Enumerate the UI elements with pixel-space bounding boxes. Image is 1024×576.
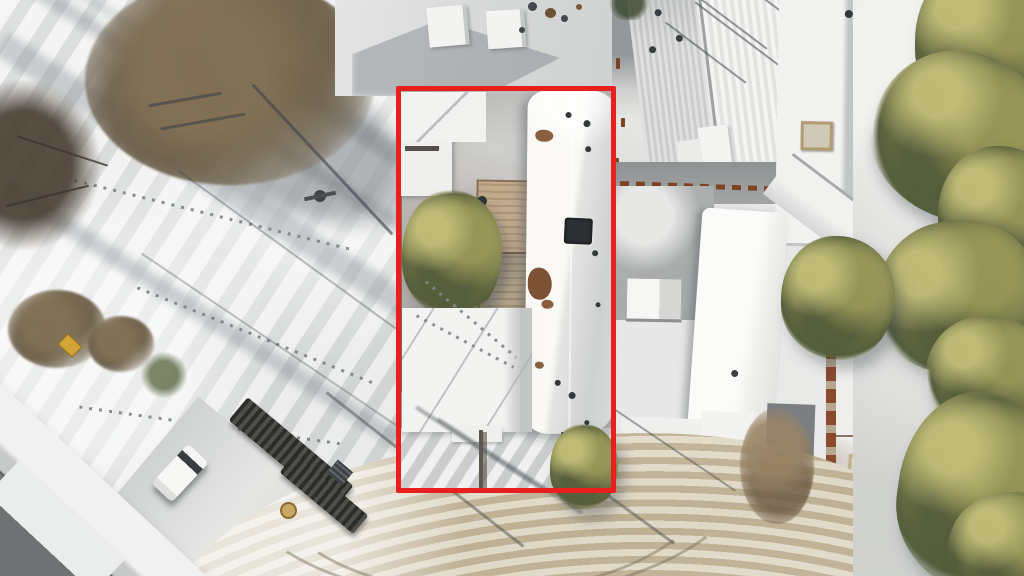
- yard-debris: [561, 15, 568, 22]
- aerial-photo-canvas: [0, 0, 1024, 576]
- roof-vent: [845, 10, 853, 18]
- small-shed: [426, 4, 469, 47]
- yard-debris: [519, 27, 525, 33]
- skylight: [800, 121, 833, 151]
- barrel: [280, 502, 297, 519]
- roof-vent: [731, 370, 738, 377]
- conifer-tip: [606, 0, 652, 20]
- spruce-tree: [781, 236, 895, 360]
- white-shed: [626, 278, 683, 323]
- bare-shrub: [740, 408, 814, 524]
- yard-debris: [545, 8, 556, 18]
- fence-post: [616, 58, 620, 69]
- property-boundary-highlight: [396, 86, 616, 493]
- bare-tree: [0, 80, 100, 250]
- yard-debris: [576, 4, 582, 10]
- fence-post: [621, 118, 625, 127]
- yard-debris: [528, 2, 537, 11]
- shrub: [138, 352, 190, 398]
